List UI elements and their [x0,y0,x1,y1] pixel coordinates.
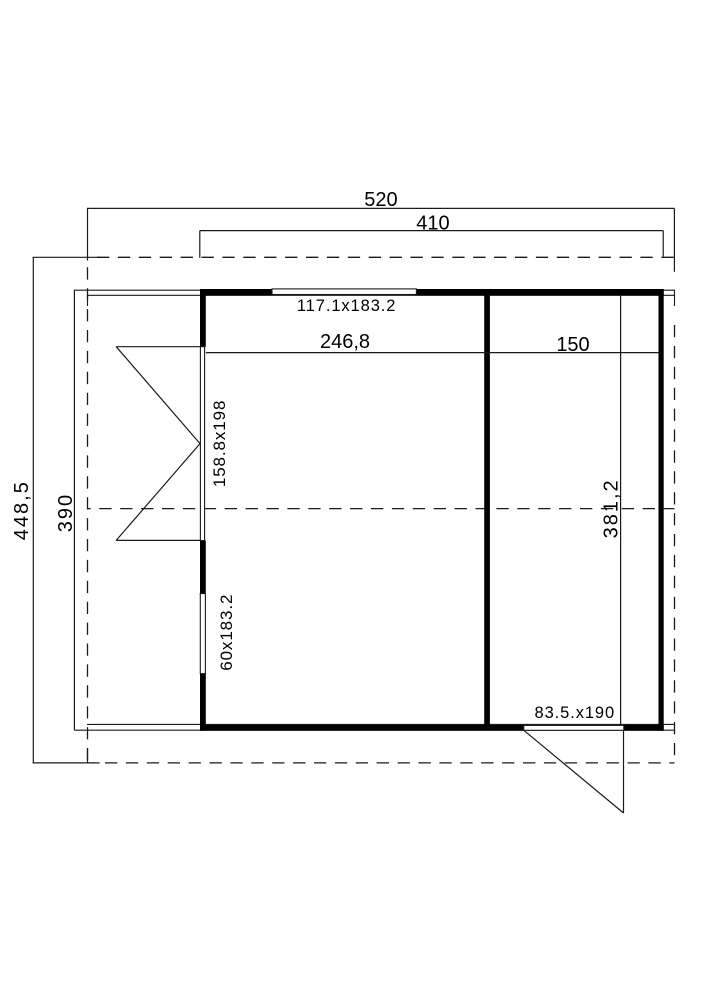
svg-text:390: 390 [55,493,77,532]
svg-text:448,5: 448,5 [11,480,33,540]
svg-text:246,8: 246,8 [320,331,370,353]
svg-text:520: 520 [364,189,397,211]
svg-text:60x183.2: 60x183.2 [217,594,236,671]
svg-text:158.8x198: 158.8x198 [210,400,229,488]
svg-text:83.5.x190: 83.5.x190 [535,704,616,722]
svg-text:117.1x183.2: 117.1x183.2 [297,297,397,315]
svg-text:150: 150 [556,334,589,356]
svg-text:410: 410 [416,212,449,234]
svg-text:381,2: 381,2 [601,478,623,538]
